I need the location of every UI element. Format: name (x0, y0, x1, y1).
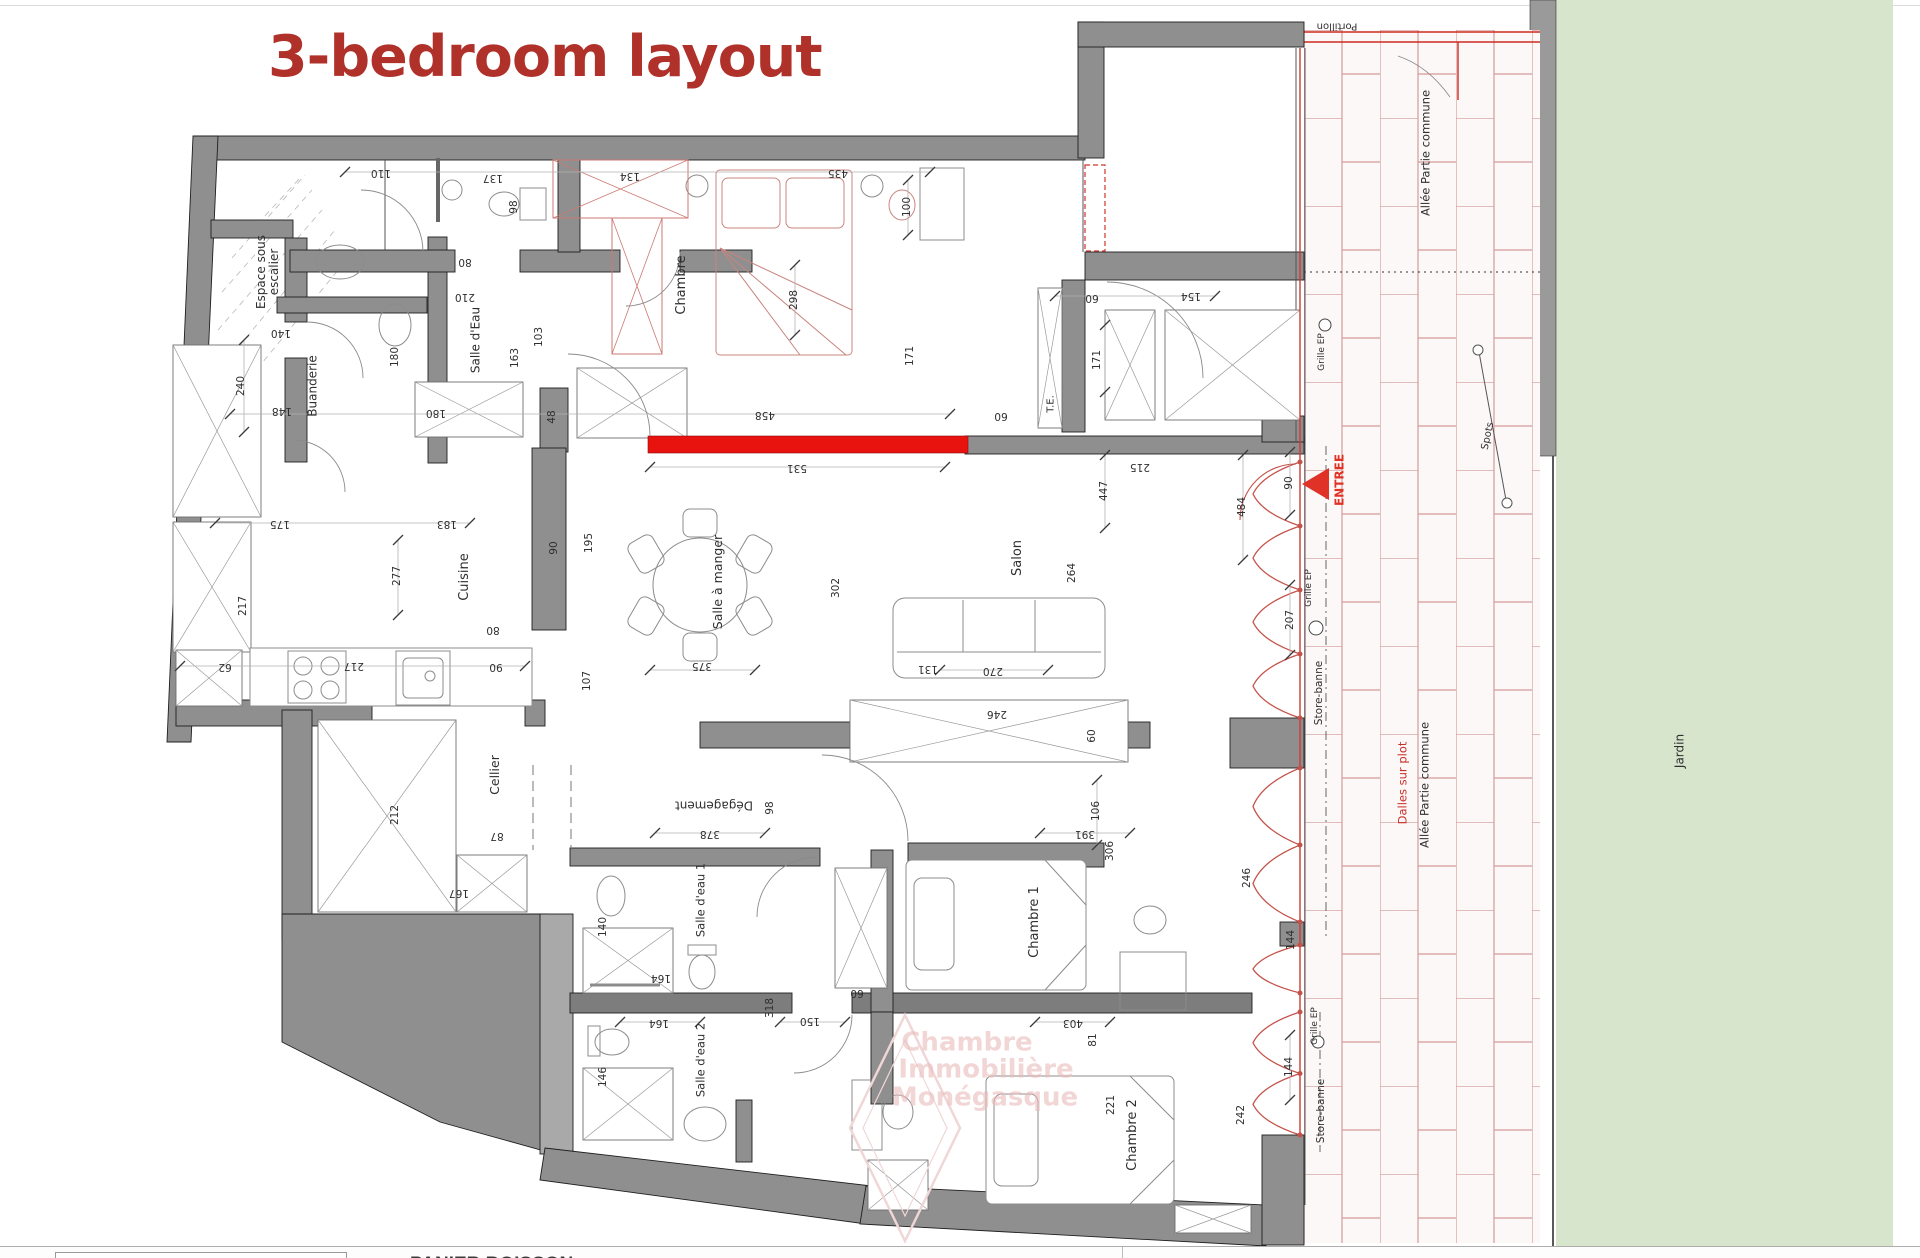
desk-chair (1134, 906, 1166, 934)
spot-symbol-1 (1473, 345, 1483, 355)
garden-grass (1556, 0, 1893, 1246)
folding-door-leaf (1253, 945, 1300, 993)
dining-chair (683, 509, 717, 537)
wall-segment (852, 993, 1252, 1013)
door-hinge (1298, 588, 1303, 593)
desk (920, 168, 964, 240)
page-title: 3-bedroom layout (268, 24, 822, 90)
door-hinge (1298, 920, 1303, 925)
floor-plan-canvas: Espace sous escalierSalle d'EauBuanderie… (0, 0, 1920, 1258)
toilet-tank (688, 945, 716, 955)
door-hinge (1298, 716, 1303, 721)
red-window (1085, 165, 1105, 251)
wall-segment (558, 160, 580, 252)
wall-segment (1062, 280, 1085, 432)
wall-segment (540, 914, 573, 1154)
desk-chair (889, 190, 915, 220)
sofa (893, 598, 1105, 678)
dining-chair (683, 633, 717, 661)
wall-segment (532, 448, 566, 630)
wall-segment (540, 388, 568, 452)
toilet-tank (588, 1026, 600, 1056)
wall-segment (282, 710, 312, 940)
shower-head (442, 180, 462, 200)
wall-segment (290, 250, 455, 272)
folding-door-leaf (1253, 1012, 1300, 1074)
door-hinge (1298, 1133, 1303, 1138)
highlighted-wall (648, 436, 968, 453)
spot-symbol-2 (1502, 498, 1512, 508)
dining-table (653, 538, 747, 632)
wall-segment (520, 250, 620, 272)
door-hinge (1298, 843, 1303, 848)
washbasin (597, 876, 625, 916)
folding-door-leaf (1253, 845, 1300, 922)
folding-door-leaf (1253, 462, 1300, 526)
folding-door-leaf (1253, 526, 1300, 590)
wall-mass-bottom-left (282, 914, 548, 1152)
wall-pier (1230, 718, 1304, 768)
folding-glass-doors (1253, 460, 1303, 1138)
folding-door-leaf (1253, 590, 1300, 654)
wall-segment-bottom-slant-1 (540, 1148, 872, 1224)
door-hinge (1298, 524, 1303, 529)
washbasin (684, 1107, 726, 1141)
toilet-bowl (689, 955, 715, 989)
grille-ep-symbol-1 (1319, 319, 1331, 331)
pillow (786, 178, 844, 228)
folding-door-leaf (1253, 768, 1300, 845)
wall-segment (1085, 252, 1304, 280)
folding-door-leaf (1253, 1074, 1300, 1136)
nightstand (686, 175, 708, 197)
wall-pier (1262, 1135, 1304, 1245)
wardrobe-x (612, 218, 662, 354)
kitchen-counter (250, 648, 532, 706)
folding-door-leaf (1253, 654, 1300, 718)
pillow (722, 178, 780, 228)
title-block-divider (1122, 1247, 1123, 1258)
title-block-row: PANIER BOISSON (0, 1246, 1920, 1258)
door-arc (822, 755, 908, 841)
door-hinge (1298, 652, 1303, 657)
grille-ep-symbol-3 (1312, 1036, 1324, 1048)
door-hinge (1298, 1010, 1303, 1015)
door-arc (307, 322, 363, 378)
floor-plan-drawing (0, 0, 1920, 1258)
walls (167, 22, 1304, 1246)
wall-segment (205, 136, 1085, 160)
door-hinge (1298, 1071, 1303, 1076)
walkway-tiles (1304, 30, 1540, 1243)
wall-segment (1078, 22, 1304, 47)
wall-segment (965, 436, 1304, 454)
walkway-area (1304, 30, 1540, 1243)
wall-segment (570, 993, 792, 1013)
nightstand (861, 175, 883, 197)
title-block-text: PANIER BOISSON (410, 1254, 573, 1258)
title-block-cell (55, 1252, 347, 1258)
door-arc (361, 190, 423, 252)
toilet-tank (520, 188, 546, 220)
door-hinge (1298, 460, 1303, 465)
door-hinge (1298, 991, 1303, 996)
desk-chair (883, 1095, 913, 1129)
garden-area (1530, 0, 1893, 1246)
wall-segment (570, 848, 820, 866)
toilet-bowl (489, 192, 519, 216)
door-hinge (1298, 766, 1303, 771)
wall-segment (700, 722, 850, 748)
door-hinge (1298, 943, 1303, 948)
wall-segment (277, 297, 427, 313)
bed-chambre-2 (986, 1076, 1174, 1204)
wall-segment (285, 358, 307, 462)
grille-ep-symbol-2 (1309, 621, 1323, 635)
entry-door-arc (1240, 464, 1296, 520)
wall-segment (211, 220, 293, 238)
wall-segment (1128, 722, 1150, 748)
wall-segment (736, 1100, 752, 1162)
